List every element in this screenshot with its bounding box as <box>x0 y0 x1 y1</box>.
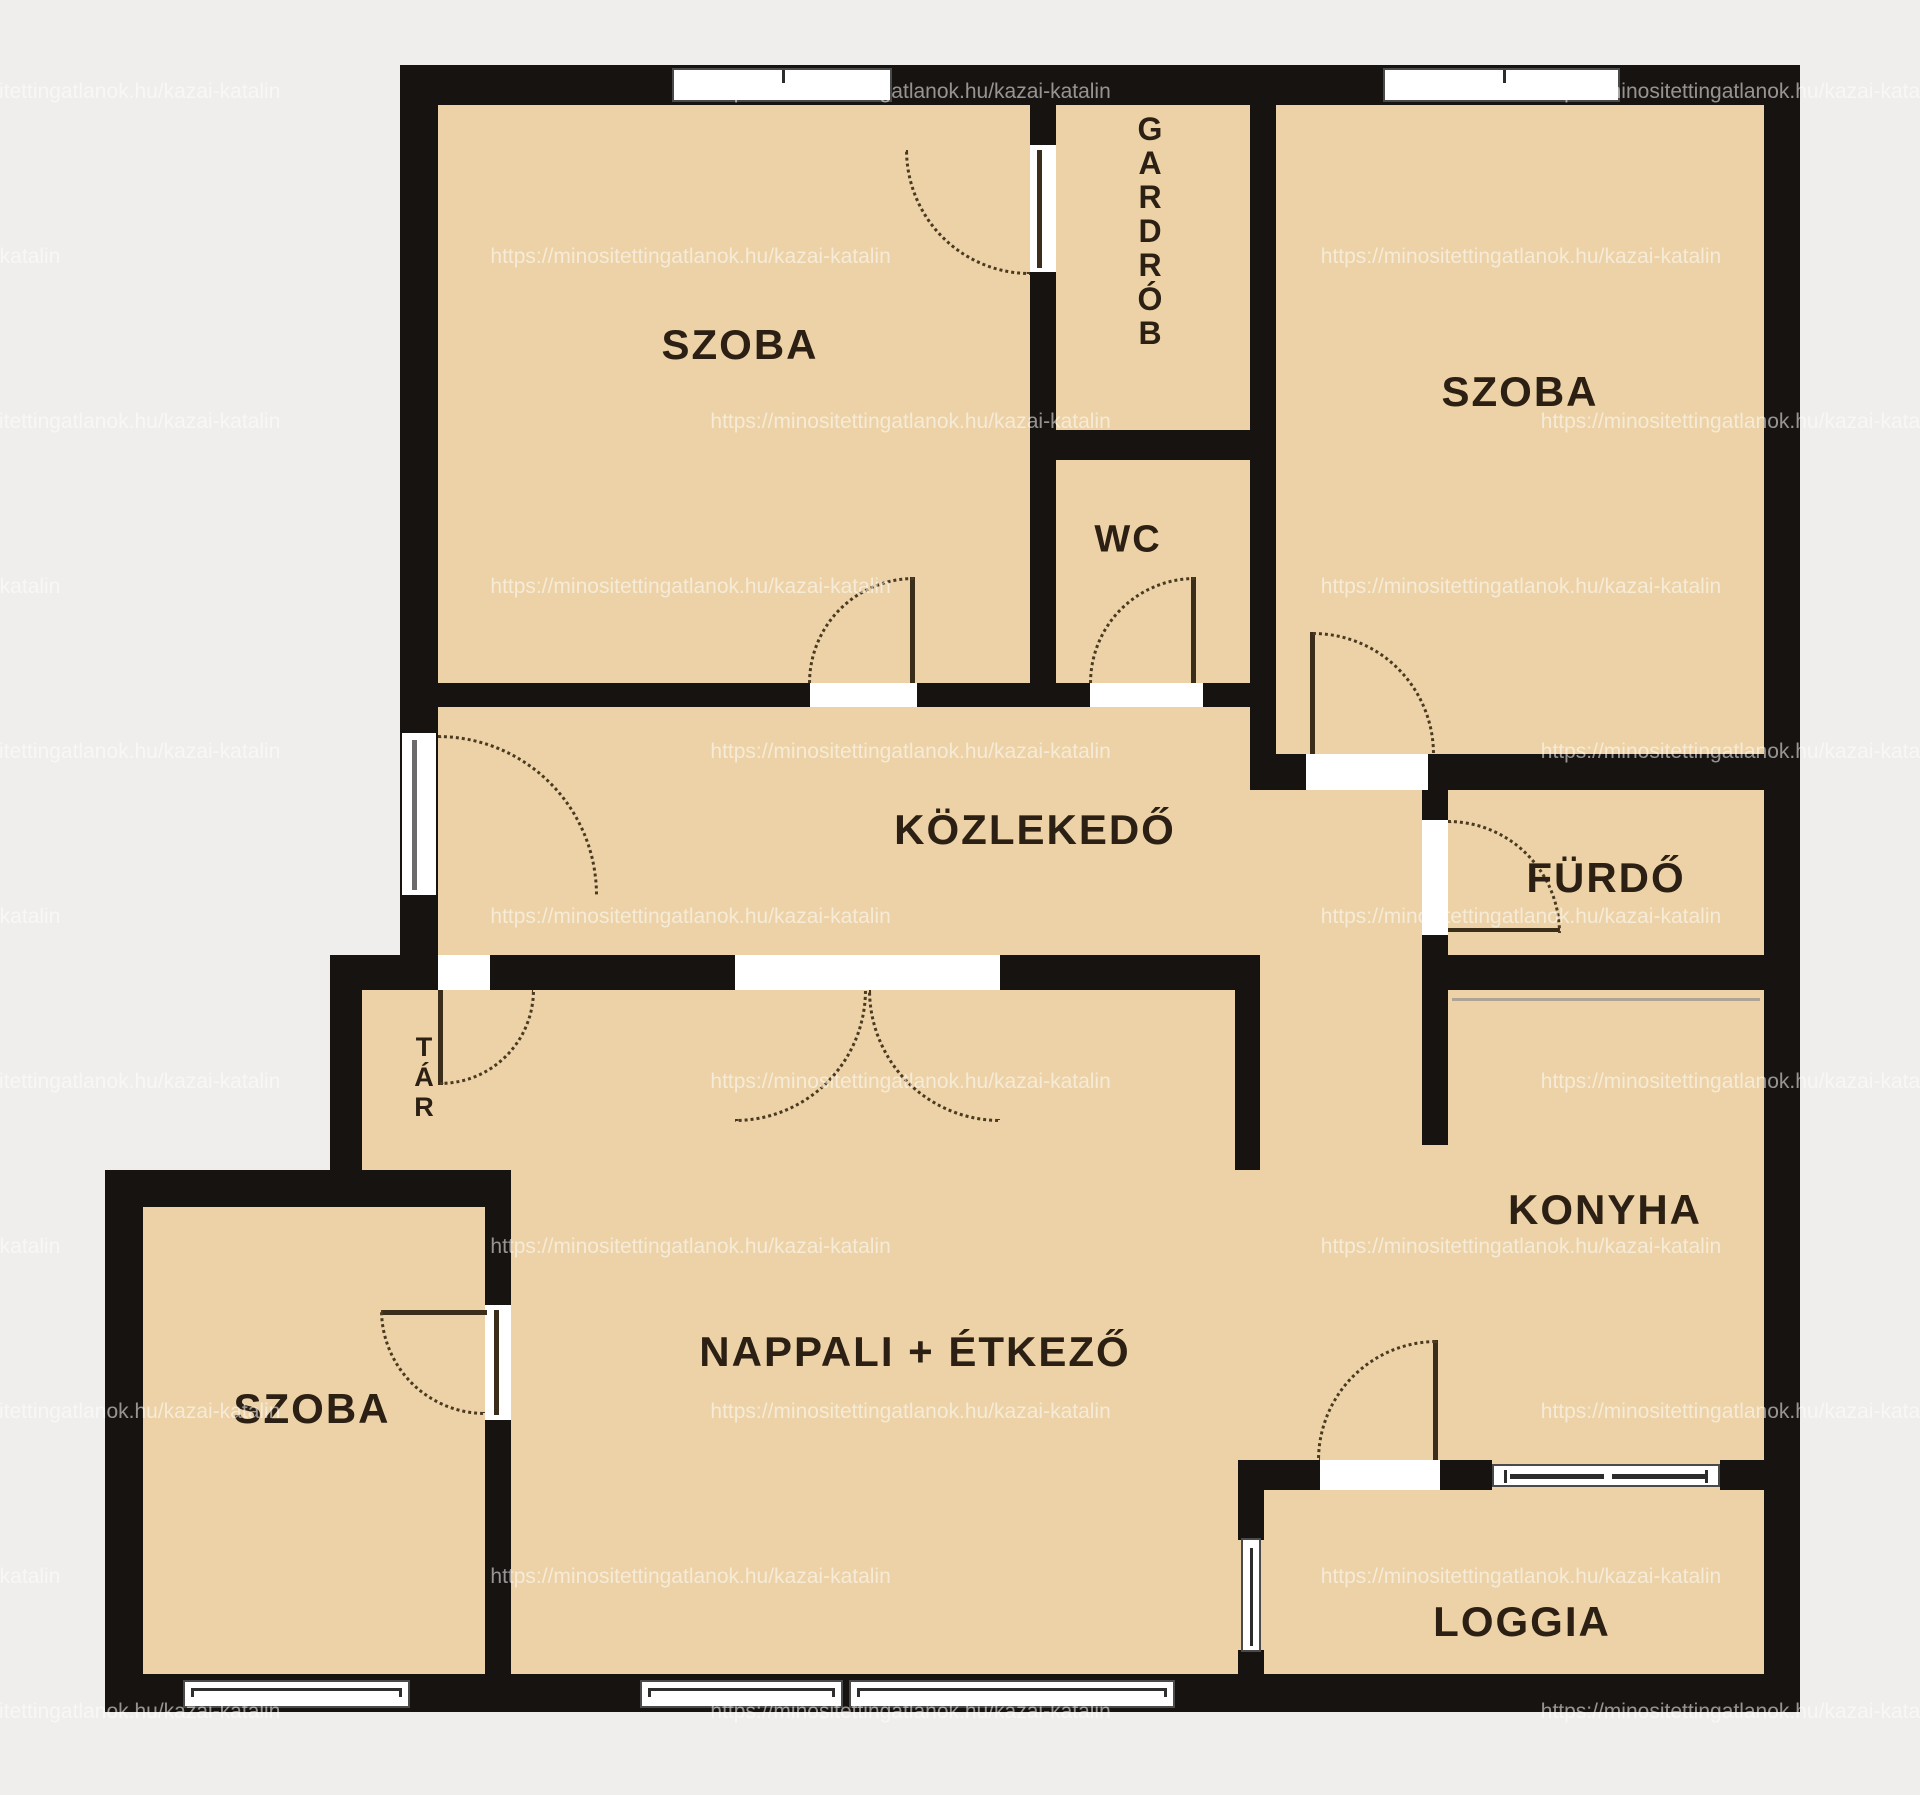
wall <box>1422 955 1800 990</box>
window <box>183 1680 410 1708</box>
wall <box>1250 754 1306 790</box>
window-sill <box>648 1688 835 1691</box>
room-label-gardrob: G A R D R Ó B <box>1138 112 1163 350</box>
room-label-loggia: LOGGIA <box>1433 1598 1611 1646</box>
room-label-furdo: FÜRDŐ <box>1526 854 1685 902</box>
door-opening <box>1306 754 1428 790</box>
wall <box>1203 683 1276 707</box>
wall <box>1422 935 1448 955</box>
door-opening-entrance <box>402 733 436 895</box>
wall <box>1440 1460 1492 1490</box>
wall <box>1030 105 1056 145</box>
window-sill-tick <box>399 1688 402 1697</box>
wall <box>490 955 735 990</box>
room-label-wc: WC <box>1094 519 1161 562</box>
wall <box>1238 1490 1264 1540</box>
wall <box>1030 272 1056 707</box>
door-opening <box>1422 820 1448 935</box>
room-label-konyha: KONYHA <box>1508 1186 1702 1234</box>
wall <box>1428 754 1764 790</box>
window <box>640 1680 843 1708</box>
window-pane-bar <box>1612 1474 1706 1479</box>
door-opening <box>1320 1460 1440 1490</box>
door-opening <box>1030 145 1056 272</box>
door-opening <box>810 683 917 707</box>
wall <box>330 955 438 990</box>
room-label-nappali: NAPPALI + ÉTKEZŐ <box>699 1328 1130 1376</box>
wall <box>917 683 1090 707</box>
wall <box>1720 1460 1764 1490</box>
room-label-szoba-top-right: SZOBA <box>1442 368 1599 416</box>
window-end-tick <box>1504 1470 1507 1483</box>
window-sill-tick <box>648 1688 651 1697</box>
window <box>1241 1538 1261 1652</box>
room-label-tar: T Á R <box>414 1032 434 1122</box>
room-label-szoba-top-left: SZOBA <box>662 321 819 369</box>
wall <box>1238 1460 1320 1490</box>
wall <box>1764 65 1800 1712</box>
window-sill-tick <box>191 1688 194 1697</box>
window-mullion <box>1503 70 1506 83</box>
window-sill <box>857 1688 1167 1691</box>
door-leaf <box>494 1310 499 1415</box>
window-sill <box>191 1688 402 1691</box>
floor-bottom-left-block <box>105 1170 511 1712</box>
wall <box>400 683 810 707</box>
window-end-tick <box>1705 1470 1708 1483</box>
room-label-szoba-bottom-left: SZOBA <box>234 1385 391 1433</box>
wall <box>1000 955 1260 990</box>
floor-plan: SZOBA G A R D R Ó B SZOBA WC KÖZLEKEDŐ F… <box>0 0 1920 1795</box>
door-opening <box>1090 683 1203 707</box>
window-pane-bar <box>1250 1548 1253 1646</box>
wall <box>1235 990 1260 1170</box>
window-sill-tick <box>832 1688 835 1697</box>
window-mullion <box>782 70 785 83</box>
window <box>849 1680 1175 1708</box>
door-leaf <box>412 740 417 890</box>
wall <box>1238 1650 1264 1674</box>
window <box>1492 1464 1720 1487</box>
wall <box>105 1170 511 1207</box>
wall <box>105 1170 143 1712</box>
wall <box>485 1207 511 1305</box>
wall <box>1030 430 1276 460</box>
window <box>1383 68 1620 102</box>
wall <box>1422 990 1448 1145</box>
wall <box>1422 790 1448 820</box>
door-leaf <box>1037 150 1042 268</box>
window <box>672 68 892 102</box>
kitchen-counter-line <box>1452 998 1760 1001</box>
window-sill-tick <box>1164 1688 1167 1697</box>
room-label-kozlekedo: KÖZLEKEDŐ <box>894 806 1176 854</box>
door-opening <box>438 955 490 990</box>
window-sill-tick <box>857 1688 860 1697</box>
window-pane-bar <box>1510 1474 1604 1479</box>
door-opening-double <box>735 955 1000 990</box>
wall <box>485 1420 511 1674</box>
